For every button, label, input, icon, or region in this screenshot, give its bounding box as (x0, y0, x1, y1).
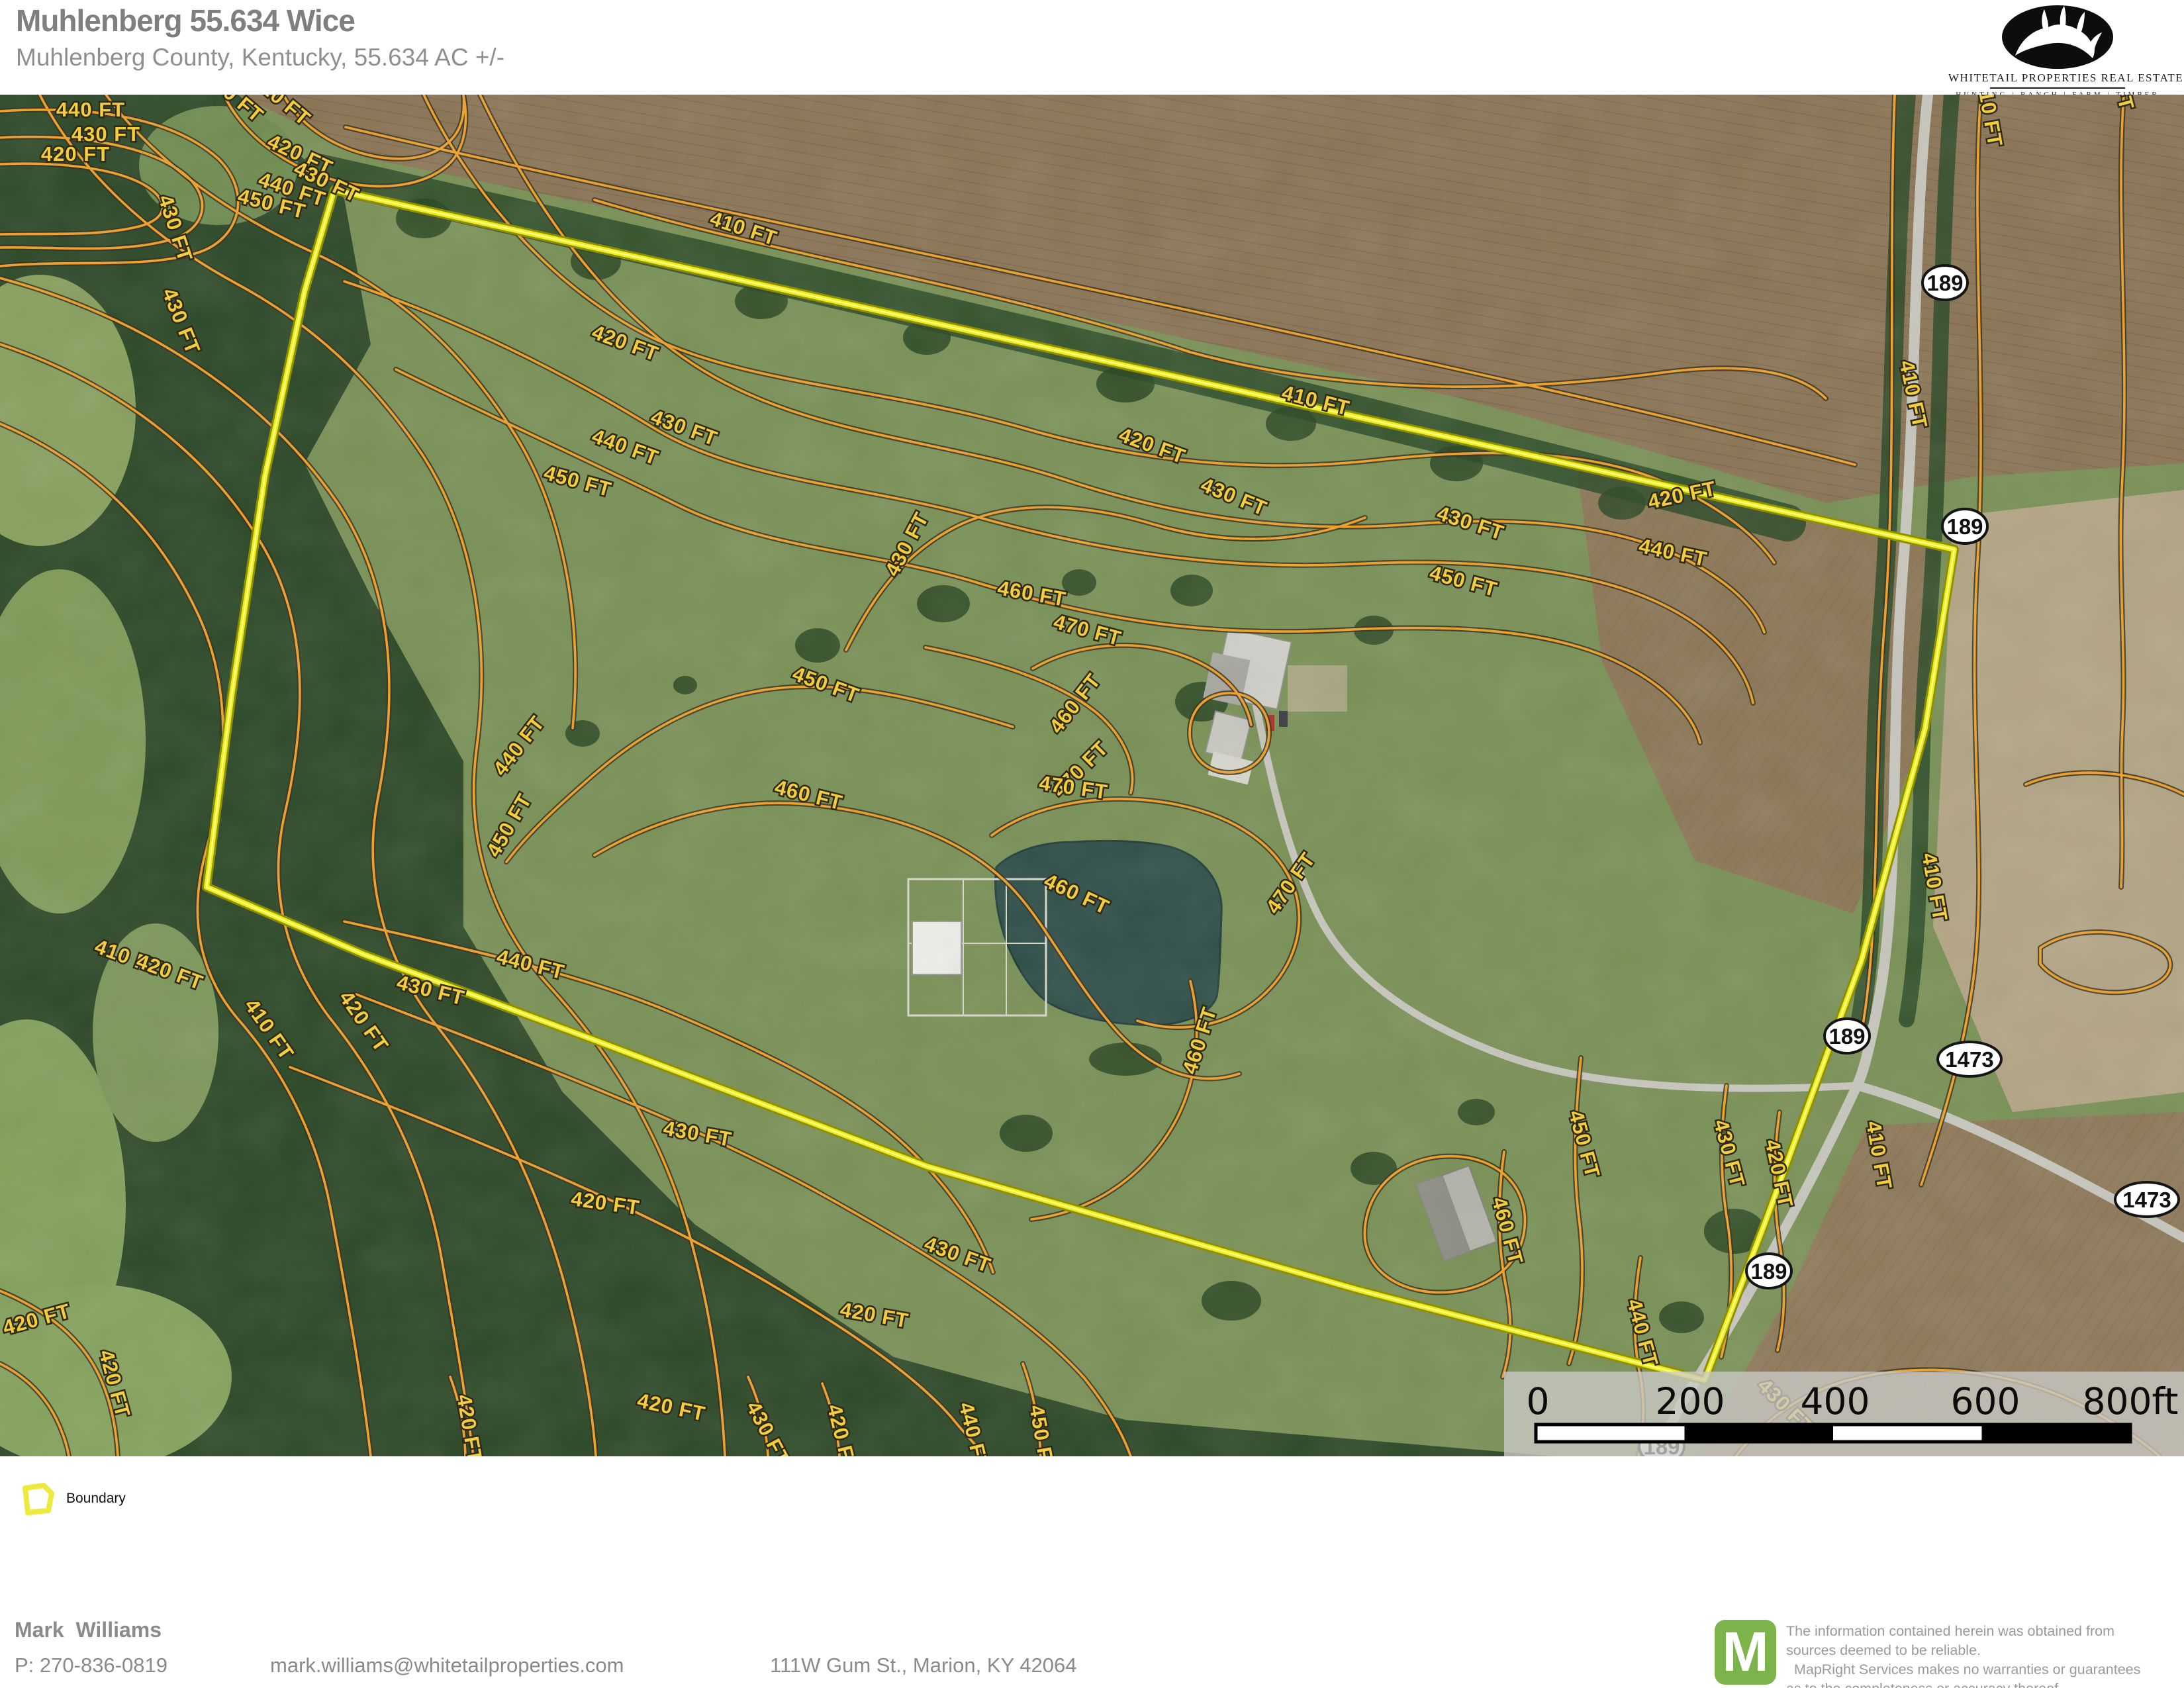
disclaimer-text: The information contained herein was obt… (1786, 1622, 2140, 1688)
property-map-page: Muhlenberg 55.634 Wice Muhlenberg County… (0, 0, 2184, 1688)
brand-divider (1990, 87, 2126, 89)
aerial-property-map: 440 FT430 FT420 FT430 FT410 FT420 FT430 … (0, 95, 2184, 1456)
scale-label: 800ft (2083, 1380, 2179, 1423)
boundary-legend-label: Boundary (66, 1491, 126, 1507)
road-shield-number: 189 (1828, 1024, 1865, 1049)
scale-label: 400 (1801, 1380, 1870, 1423)
scale-label: 600 (1951, 1380, 2020, 1423)
agent-name: Mark Williams (15, 1618, 162, 1642)
agent-phone: P: 270-836-0819 (15, 1654, 167, 1677)
terrain-texture (0, 95, 2184, 1456)
road-shield-number: 1473 (2122, 1188, 2171, 1212)
scale-bar: 0200400600800ft (1504, 1372, 2184, 1456)
scale-bar-segment (1685, 1425, 1834, 1442)
antler-logo-icon (2001, 4, 2114, 70)
road-shield-number: 189 (1750, 1259, 1787, 1284)
contour-elevation-label: 420 FT (41, 142, 110, 165)
road-shield-number: 189 (1926, 271, 1963, 295)
whitetail-properties-logo: Whitetail Properties Real Estate HUNTING… (1948, 4, 2167, 99)
disclaimer-line: MapRight Services makes no warranties or… (1786, 1660, 2140, 1679)
agent-email: mark.williams@whitetailproperties.com (270, 1654, 624, 1677)
brand-name: Whitetail Properties Real Estate (1948, 71, 2167, 85)
road-shield-number: 189 (1946, 514, 1983, 539)
boundary-legend-icon (19, 1483, 58, 1517)
contour-elevation-label: 440 FT (56, 98, 125, 121)
page-subtitle: Muhlenberg County, Kentucky, 55.634 AC +… (16, 44, 504, 71)
mapright-logo: M (1715, 1620, 1776, 1685)
scale-bar-segment (1982, 1425, 2131, 1442)
disclaimer-line: sources deemed to be reliable. (1786, 1641, 2140, 1660)
page-title: Muhlenberg 55.634 Wice (16, 3, 355, 38)
agent-address: 111W Gum St., Marion, KY 42064 (770, 1654, 1077, 1677)
disclaimer-line: The information contained herein was obt… (1786, 1622, 2140, 1641)
scale-label: 0 (1527, 1380, 1550, 1423)
legend: Boundary (19, 1483, 58, 1517)
disclaimer-line: as to the completeness or accuracy there… (1786, 1679, 2140, 1688)
road-shield-number: 1473 (1945, 1047, 1993, 1072)
scale-label: 200 (1656, 1380, 1725, 1423)
